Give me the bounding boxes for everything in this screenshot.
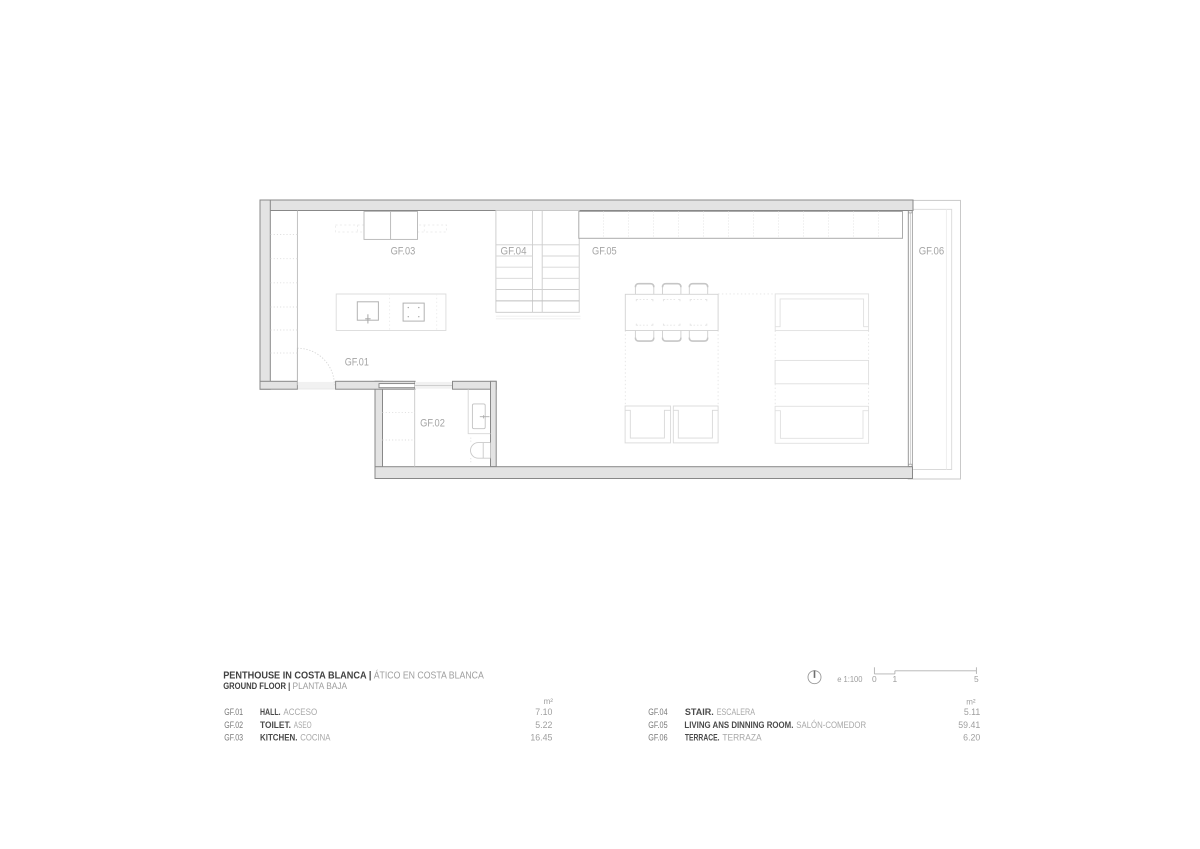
svg-text:TOILET.: TOILET. bbox=[260, 720, 291, 730]
svg-text:TERRAZA: TERRAZA bbox=[722, 733, 761, 743]
svg-text:KITCHEN.: KITCHEN. bbox=[260, 733, 298, 743]
svg-text:HALL.: HALL. bbox=[260, 707, 281, 717]
svg-text:GF.05: GF.05 bbox=[648, 720, 667, 730]
svg-text:GF.02: GF.02 bbox=[224, 720, 243, 730]
svg-text:SALÓN-COMEDOR: SALÓN-COMEDOR bbox=[796, 720, 866, 730]
svg-text:TERRACE.: TERRACE. bbox=[685, 733, 720, 743]
svg-text:7.10: 7.10 bbox=[535, 707, 552, 717]
svg-text:GF.04: GF.04 bbox=[501, 246, 527, 258]
svg-text:PLANTA BAJA: PLANTA BAJA bbox=[293, 681, 348, 691]
svg-text:e 1:100: e 1:100 bbox=[837, 674, 863, 684]
svg-text:ASEO: ASEO bbox=[294, 720, 312, 730]
svg-text:5: 5 bbox=[974, 674, 979, 684]
svg-text:GROUND FLOOR |: GROUND FLOOR | bbox=[223, 681, 290, 691]
svg-text:COCINA: COCINA bbox=[300, 733, 330, 743]
svg-text:m²: m² bbox=[544, 697, 554, 706]
svg-text:GF.06: GF.06 bbox=[919, 246, 945, 258]
svg-text:PENTHOUSE IN COSTA BLANCA |: PENTHOUSE IN COSTA BLANCA | bbox=[223, 670, 371, 681]
svg-text:1: 1 bbox=[893, 674, 898, 684]
svg-text:ESCALERA: ESCALERA bbox=[717, 707, 755, 717]
svg-text:GF.01: GF.01 bbox=[224, 707, 243, 717]
svg-text:GF.06: GF.06 bbox=[648, 733, 667, 743]
svg-text:GF.04: GF.04 bbox=[648, 707, 667, 717]
svg-text:5.22: 5.22 bbox=[535, 720, 552, 730]
svg-text:0: 0 bbox=[872, 674, 877, 684]
svg-text:5.11: 5.11 bbox=[964, 707, 981, 717]
svg-text:GF.02: GF.02 bbox=[420, 417, 445, 429]
svg-text:GF.03: GF.03 bbox=[224, 733, 243, 743]
svg-text:STAIR.: STAIR. bbox=[685, 707, 714, 717]
svg-text:ÁTICO EN COSTA BLANCA: ÁTICO EN COSTA BLANCA bbox=[374, 668, 484, 681]
svg-text:m²: m² bbox=[966, 698, 976, 707]
svg-text:GF.05: GF.05 bbox=[592, 246, 617, 258]
svg-text:LIVING ANS DINNING ROOM.: LIVING ANS DINNING ROOM. bbox=[684, 720, 793, 730]
svg-text:6.20: 6.20 bbox=[963, 733, 980, 743]
svg-text:59.41: 59.41 bbox=[958, 720, 980, 730]
svg-text:GF.03: GF.03 bbox=[391, 246, 416, 258]
svg-text:GF.01: GF.01 bbox=[345, 356, 369, 368]
svg-text:ACCESO: ACCESO bbox=[283, 707, 317, 717]
svg-text:16.45: 16.45 bbox=[530, 733, 552, 743]
